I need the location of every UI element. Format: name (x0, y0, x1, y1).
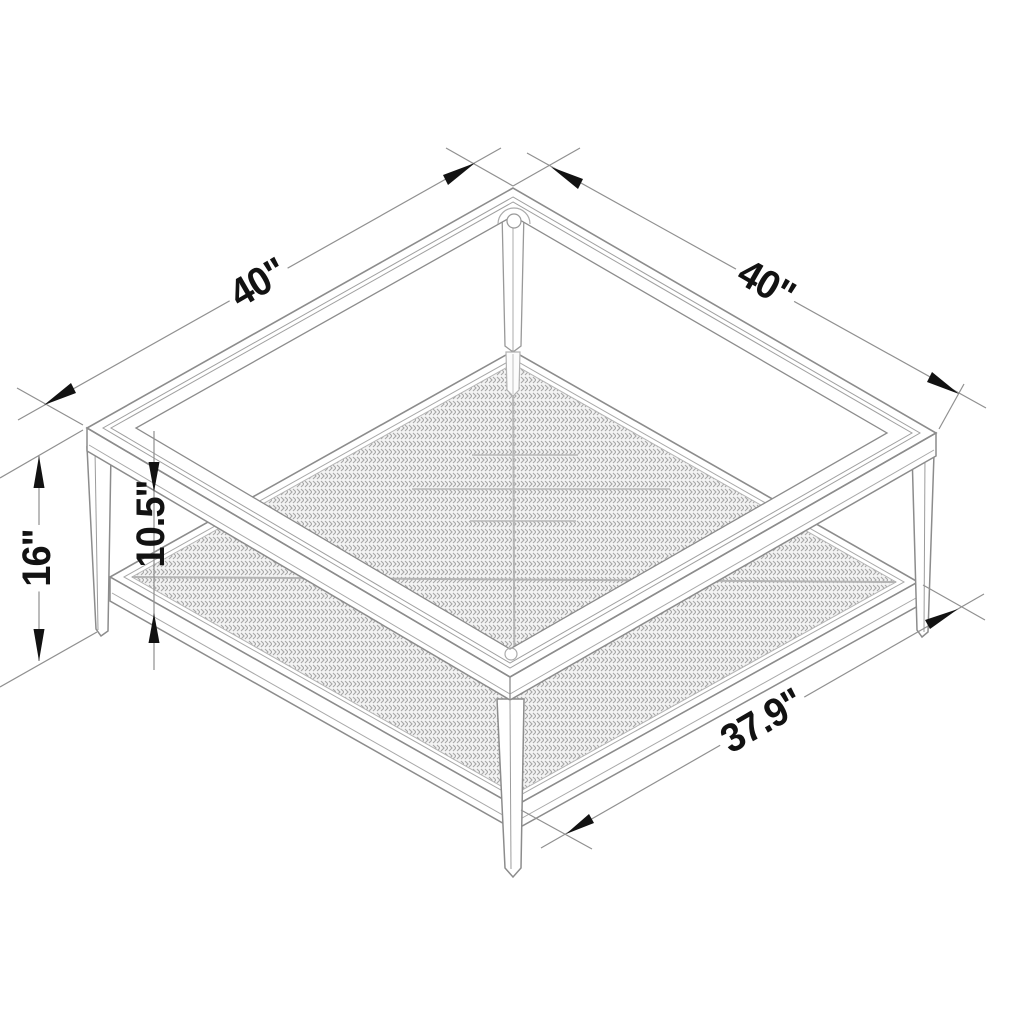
back-leg (502, 212, 524, 352)
arrowhead (443, 163, 475, 185)
arrowhead (44, 383, 76, 405)
back-leg-stub (506, 352, 520, 396)
arrowhead (925, 609, 958, 629)
left-leg (87, 447, 111, 636)
arrowhead (566, 814, 594, 834)
arrowhead (34, 456, 45, 488)
arrowhead (927, 372, 959, 394)
arrowhead (34, 629, 45, 661)
dimension-label-height-16: 16" (15, 525, 59, 592)
front-leg (497, 699, 524, 877)
drawing-canvas: 40" 40" 16" 10.5" 37.9" (0, 0, 1024, 1024)
right-leg (912, 452, 934, 637)
arrowhead (551, 167, 583, 189)
dimension-label-clearance-10-5: 10.5" (129, 476, 173, 573)
